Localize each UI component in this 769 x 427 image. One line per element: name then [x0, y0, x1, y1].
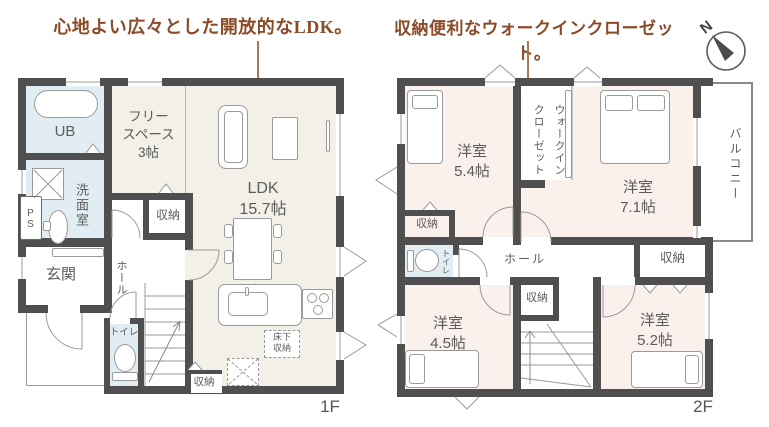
toilet-bowl [114, 344, 136, 372]
room-size: 5.2帖 [610, 331, 700, 351]
label-hall: ホール [114, 255, 128, 301]
wall-tv [326, 120, 330, 152]
wall [405, 210, 455, 216]
headline-ldk: 心地よい広々とした開放的なLDK。 [20, 13, 386, 39]
window [574, 78, 602, 86]
door-arc [112, 210, 140, 238]
casement-window-triangle [485, 65, 515, 78]
window [128, 78, 162, 86]
label-storage: 収納 [405, 217, 449, 232]
label-underfloor-storage: 床下 収納 [264, 332, 300, 355]
wall [26, 153, 104, 160]
wall [397, 389, 713, 397]
pillow [637, 95, 665, 111]
pillow [685, 355, 699, 384]
wall [521, 315, 559, 321]
wall [635, 277, 713, 285]
entrance-porch [26, 313, 105, 386]
casement-window-fan [344, 247, 366, 276]
window [66, 78, 100, 86]
label-room-4-5: 洋室 4.5帖 [403, 314, 493, 354]
label-pipe-space: PS [23, 202, 37, 236]
compass-north-label: N [697, 18, 716, 38]
label-free-space: フリー スペース 3帖 [112, 108, 185, 161]
bathtub [34, 90, 98, 118]
shoe-cabinet [52, 248, 104, 257]
stairs-direction-arrow [525, 331, 535, 384]
underfloor-line1: 床下 [264, 332, 300, 343]
window [693, 118, 701, 166]
label-ub: UB [38, 122, 92, 142]
room-name: 洋室 [427, 142, 517, 162]
wic-line2: クローゼット [527, 92, 548, 188]
floor-label-1f: 1F [308, 397, 352, 417]
wall [104, 193, 193, 200]
wall [449, 210, 455, 237]
room-name: 洋室 [593, 178, 683, 198]
dining-chair [224, 224, 233, 238]
wic-line1: ウォークイン [548, 92, 569, 188]
underfloor-hatch [227, 358, 259, 386]
label-toilet: トイレ [106, 327, 142, 340]
door-arc [459, 249, 487, 277]
label-room-7-1: 洋室 7.1帖 [593, 178, 683, 218]
wall [593, 277, 601, 285]
room-name: 洋室 [610, 311, 700, 331]
wall [593, 285, 601, 389]
dining-chair [273, 250, 282, 264]
wall [551, 237, 693, 245]
casement-window-triangle [455, 397, 479, 409]
free-space-name-line1: フリー [112, 108, 185, 126]
wall [397, 237, 483, 245]
window [693, 226, 701, 238]
label-toilet: トイレ [439, 247, 451, 277]
toilet-tank [407, 250, 414, 272]
stove [302, 289, 333, 319]
floorplan-canvas: 心地よい広々とした開放的なLDK。 収納便利なウォークインクローゼット。 N [0, 0, 769, 427]
dining-chair [224, 250, 233, 264]
stairs [521, 324, 593, 387]
label-balcony: バルコニー [724, 104, 742, 224]
free-space-name-line2: スペース [112, 126, 185, 144]
window [705, 293, 713, 339]
pillow [605, 95, 633, 111]
wall [453, 245, 459, 255]
label-storage: 収納 [149, 208, 187, 224]
stairs-direction-arrow [149, 321, 180, 382]
room-size: 4.5帖 [403, 334, 493, 354]
underfloor-line2: 収納 [264, 343, 300, 354]
window [18, 170, 26, 194]
casement-window-fan [376, 167, 397, 194]
floor-plan-1f: UB 洗面室 PS フリー スペース 3帖 収納 LDK 15.7帖 玄関 ホー… [18, 78, 344, 394]
label-entrance: 玄関 [32, 265, 90, 285]
label-washroom: 洗面室 [74, 178, 90, 232]
window [336, 247, 344, 277]
toilet-bowl [415, 249, 439, 272]
label-room-5-4: 洋室 5.4帖 [427, 142, 517, 182]
window [485, 78, 515, 86]
wall [510, 277, 559, 285]
window [18, 257, 26, 279]
label-hall: ホール [497, 252, 553, 268]
kitchen-faucet [245, 287, 249, 296]
label-ldk: LDK 15.7帖 [218, 178, 308, 220]
pillow [412, 95, 438, 109]
casement-window-fan [344, 332, 366, 359]
room-size: 7.1帖 [593, 198, 683, 218]
wall [80, 305, 104, 313]
window [397, 114, 405, 144]
casement-window-fan [378, 314, 397, 337]
wall [143, 233, 187, 240]
floor-plan-2f: 洋室 5.4帖 ウォークイン クローゼット 洋室 7.1帖 バルコニー 収納 ト… [397, 78, 755, 397]
label-storage: 収納 [183, 376, 225, 390]
tv-board [272, 117, 298, 160]
wall [397, 78, 713, 86]
label-room-5-2: 洋室 5.2帖 [610, 311, 700, 351]
label-walk-in-closet: ウォークイン クローゼット [523, 92, 569, 188]
compass-needle [712, 35, 734, 61]
pillow [409, 354, 425, 384]
label-storage: 収納 [640, 250, 705, 267]
stairs [145, 283, 185, 386]
washbasin-sink [48, 210, 68, 244]
ldk-name: LDK [218, 178, 308, 199]
label-storage: 収納 [519, 291, 555, 306]
wall [104, 245, 112, 313]
wall [18, 305, 48, 313]
toilet-tank [112, 372, 138, 381]
faucet [43, 221, 51, 231]
ldk-size: 15.7帖 [218, 199, 308, 220]
dining-chair [273, 224, 282, 238]
sofa-seat [224, 111, 243, 163]
wall [513, 237, 521, 245]
casement-window-triangle [574, 67, 600, 78]
free-space-size: 3帖 [112, 144, 185, 162]
headline-wic: 収納便利なウォークインクローゼット。 [379, 14, 689, 64]
wall [104, 78, 112, 248]
dining-table [233, 218, 272, 280]
floor-label-2f: 2F [681, 397, 725, 417]
wall [397, 277, 480, 285]
room-size: 5.4帖 [427, 162, 517, 182]
room-name: 洋室 [403, 314, 493, 334]
room-boundary-line [185, 86, 186, 193]
window [336, 332, 344, 360]
compass-icon: N [695, 10, 761, 80]
window [336, 114, 344, 196]
